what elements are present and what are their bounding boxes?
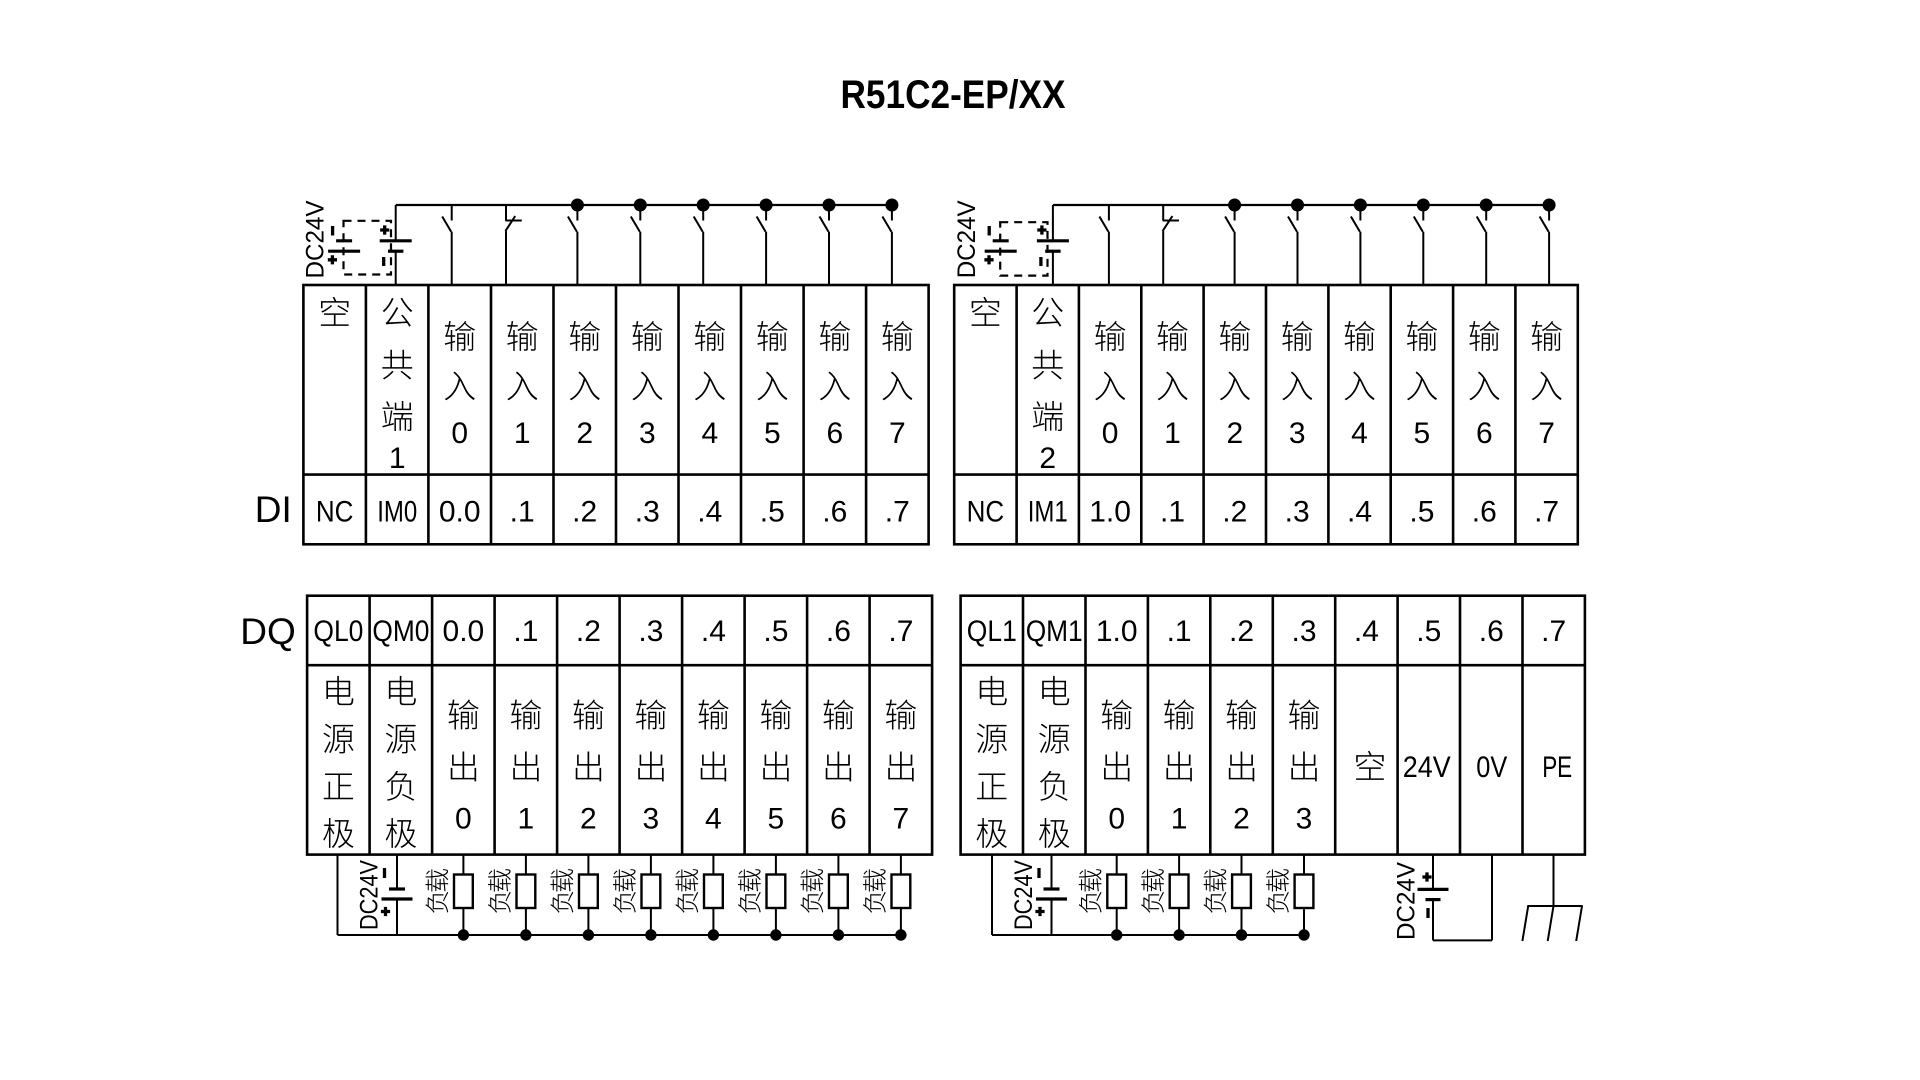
svg-text:3: 3: [1289, 417, 1306, 450]
svg-text:.5: .5: [1416, 615, 1441, 648]
svg-text:IM1: IM1: [1028, 496, 1068, 529]
svg-text:2: 2: [1226, 417, 1243, 450]
svg-text:.5: .5: [1409, 496, 1434, 529]
svg-text:QM0: QM0: [372, 615, 429, 648]
svg-text:2: 2: [1039, 442, 1056, 475]
svg-text:DC24V: DC24V: [953, 200, 981, 278]
svg-text:.7: .7: [1541, 615, 1566, 648]
svg-text:DI: DI: [255, 489, 292, 530]
svg-text:.7: .7: [885, 496, 910, 529]
svg-text:1: 1: [1171, 802, 1188, 835]
svg-text:3: 3: [643, 802, 660, 835]
svg-text:.1: .1: [510, 496, 535, 529]
svg-text:NC: NC: [967, 496, 1005, 529]
svg-text:1: 1: [1164, 417, 1181, 450]
svg-text:.6: .6: [826, 615, 851, 648]
svg-text:7: 7: [893, 802, 910, 835]
svg-text:6: 6: [830, 802, 847, 835]
svg-text:1: 1: [389, 442, 406, 475]
svg-text:DC24V: DC24V: [301, 200, 329, 278]
svg-text:5: 5: [1414, 417, 1431, 450]
svg-text:DC24V: DC24V: [1392, 862, 1420, 940]
svg-text:.1: .1: [1160, 496, 1185, 529]
svg-text:NC: NC: [316, 496, 354, 529]
svg-text:3: 3: [1296, 802, 1313, 835]
svg-text:.1: .1: [513, 615, 538, 648]
svg-text:.5: .5: [760, 496, 785, 529]
svg-text:4: 4: [1351, 417, 1368, 450]
svg-text:2: 2: [580, 802, 597, 835]
svg-text:0: 0: [455, 802, 472, 835]
svg-text:.2: .2: [572, 496, 597, 529]
svg-text:.4: .4: [697, 496, 722, 529]
svg-text:.7: .7: [888, 615, 913, 648]
svg-text:.2: .2: [1229, 615, 1254, 648]
svg-text:IM0: IM0: [377, 496, 417, 529]
svg-text:0.0: 0.0: [443, 615, 485, 648]
svg-text:5: 5: [768, 802, 785, 835]
svg-text:1: 1: [518, 802, 535, 835]
svg-text:.4: .4: [1354, 615, 1379, 648]
svg-text:QM1: QM1: [1026, 615, 1083, 648]
svg-text:DC24V: DC24V: [355, 860, 383, 930]
svg-text:.4: .4: [701, 615, 726, 648]
svg-text:0V: 0V: [1476, 751, 1507, 784]
svg-text:0: 0: [451, 417, 468, 450]
svg-text:5: 5: [764, 417, 781, 450]
svg-text:0: 0: [1108, 802, 1125, 835]
svg-text:PE: PE: [1542, 751, 1572, 784]
svg-text:1.0: 1.0: [1089, 496, 1131, 529]
svg-text:1.0: 1.0: [1096, 615, 1138, 648]
svg-text:6: 6: [1476, 417, 1493, 450]
svg-text:.3: .3: [635, 496, 660, 529]
svg-text:.6: .6: [822, 496, 847, 529]
svg-text:.5: .5: [763, 615, 788, 648]
svg-text:.2: .2: [576, 615, 601, 648]
svg-text:2: 2: [1233, 802, 1250, 835]
svg-text:2: 2: [576, 417, 593, 450]
svg-text:4: 4: [701, 417, 718, 450]
svg-text:R51C2-EP/XX: R51C2-EP/XX: [841, 73, 1066, 117]
svg-text:4: 4: [705, 802, 722, 835]
svg-text:0.0: 0.0: [439, 496, 481, 529]
svg-text:.1: .1: [1167, 615, 1192, 648]
svg-text:DQ: DQ: [240, 611, 296, 652]
svg-text:.7: .7: [1534, 496, 1559, 529]
svg-text:.6: .6: [1479, 615, 1504, 648]
svg-text:.6: .6: [1472, 496, 1497, 529]
svg-text:.3: .3: [1291, 615, 1316, 648]
svg-text:DC24V: DC24V: [1010, 860, 1038, 930]
svg-text:0: 0: [1102, 417, 1119, 450]
svg-text:.4: .4: [1347, 496, 1372, 529]
svg-text:6: 6: [826, 417, 843, 450]
svg-text:7: 7: [889, 417, 906, 450]
svg-text:.2: .2: [1222, 496, 1247, 529]
svg-text:3: 3: [639, 417, 656, 450]
svg-text:QL0: QL0: [313, 615, 363, 648]
svg-text:.3: .3: [1285, 496, 1310, 529]
svg-text:QL1: QL1: [967, 615, 1017, 648]
svg-text:1: 1: [514, 417, 531, 450]
svg-text:.3: .3: [638, 615, 663, 648]
svg-text:7: 7: [1538, 417, 1555, 450]
svg-text:24V: 24V: [1403, 751, 1451, 784]
